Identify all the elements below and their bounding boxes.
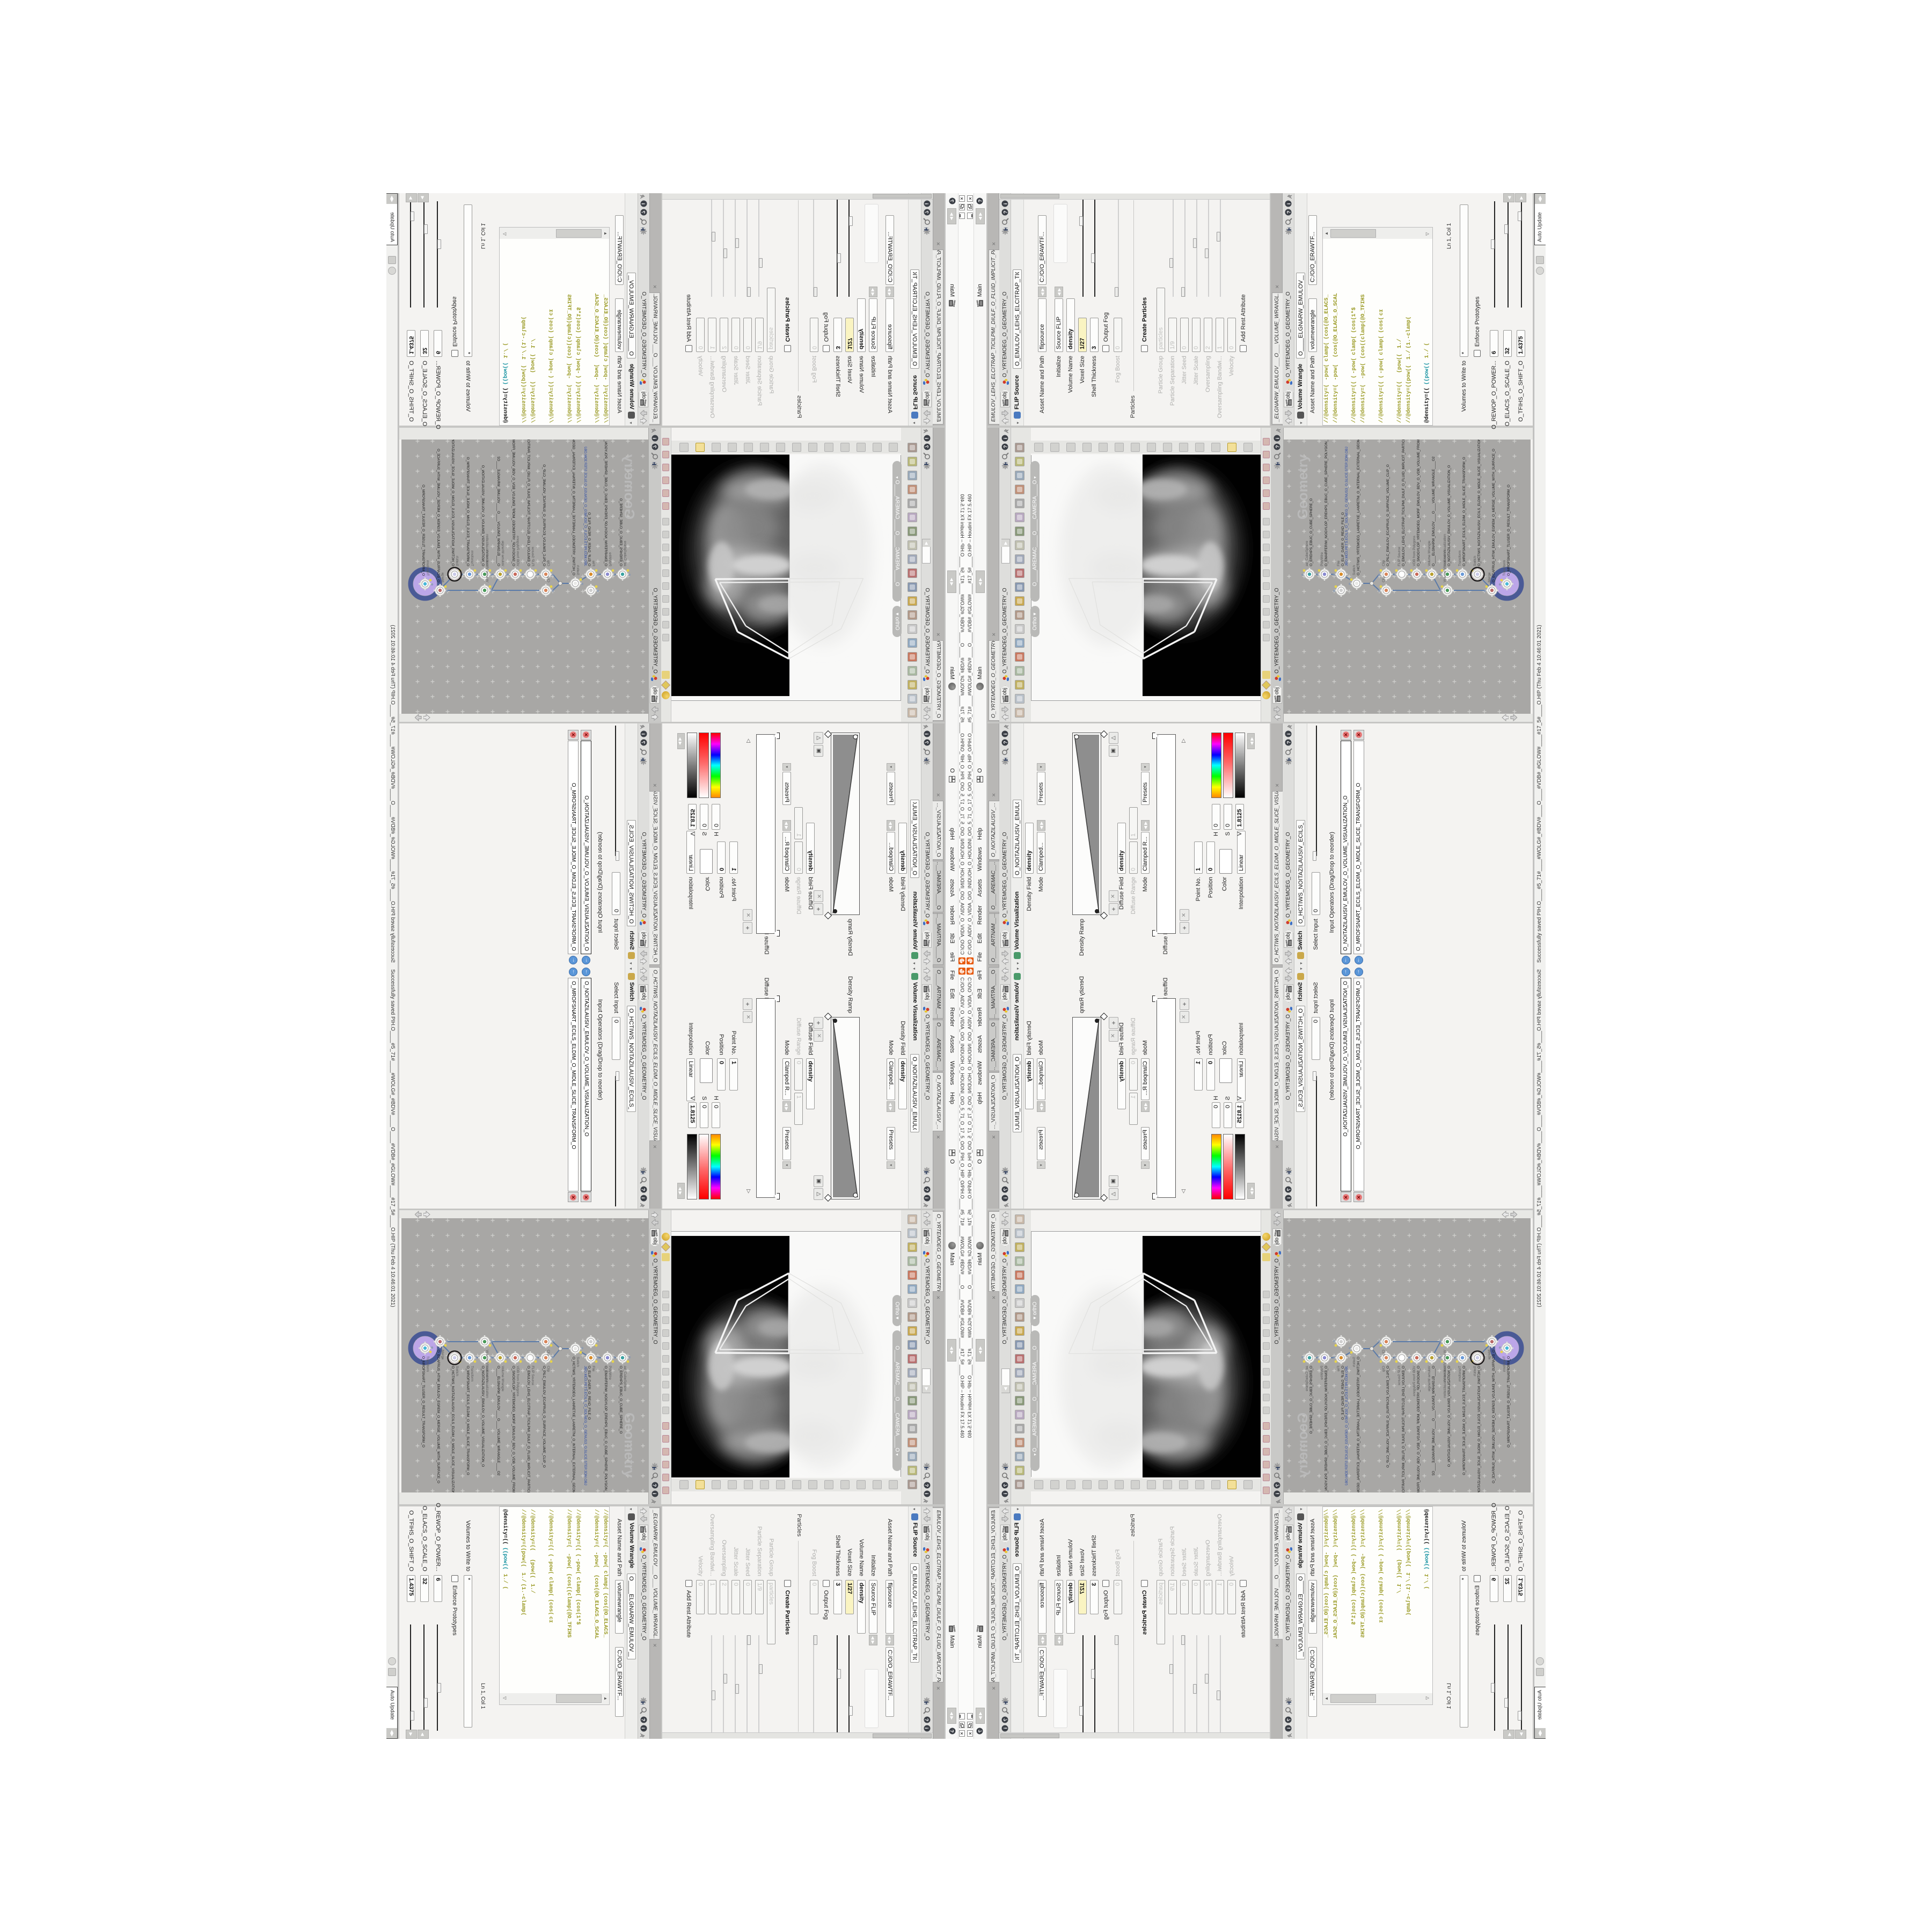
svg-text:ae_CubeSphere: ae_CubeSphere [1305,1366,1309,1392]
svg-text:O_EMULOV_LEHS_ELCITRAP_TICILPM: O_EMULOV_LEHS_ELCITRAP_TICILPMI_DIULF_O_… [1402,440,1406,566]
svg-text:O_SNOGYLOP_YRTEMOEG_MORF_EMULO: O_SNOGYLOP_YRTEMOEG_MORF_EMULOV_BDV_O_VD… [511,440,515,566]
svg-text:Transform: Transform [426,560,429,576]
svg-text:O_HCTIWS_NOITAZILAUSIV_ECILS_E: O_HCTIWS_NOITAZILAUSIV_ECILS_ELDIM_O_MID… [451,440,455,566]
svg-text:O_PILC_EMULOV_ECAFRUS_O_SURFAC: O_PILC_EMULOV_ECAFRUS_O_SURFACE_VOLUME_C… [542,1366,546,1468]
svg-text:File: File [591,560,595,566]
svg-text:H: H [1003,462,1009,465]
svg-text:Merge: Merge [441,1350,444,1360]
svg-text:i: i [652,1493,657,1495]
svg-text:H: H [923,462,929,465]
svg-text:O____ELGNARW_EMULOV____O____VO: O____ELGNARW_EMULOV____O____VOLUME_WRANG… [496,1366,500,1476]
svg-text:i: i [924,437,930,439]
svg-text:H: H [651,1467,657,1470]
svg-text:i: i [1286,1728,1292,1729]
svg-text:?: ? [924,741,930,744]
svg-text:Merge: Merge [1488,1350,1491,1360]
svg-text:Transform: Transform [1458,1366,1462,1381]
svg-text:i: i [640,203,646,204]
svg-text:FLIP Source: FLIP Source [1397,1366,1401,1385]
svg-text:i: i [924,733,930,735]
svg-text:Switch: Switch [576,1357,580,1367]
svg-text:VDB from Polygons: VDB from Polygons [1413,536,1416,566]
svg-text:O_PILC_EMULOV_ECAFRUS_O_SURFAC: O_PILC_EMULOV_ECAFRUS_O_SURFACE_VOLUME_C… [1386,1366,1390,1468]
svg-text:H: H [1286,228,1292,231]
svg-text:?: ? [924,445,930,448]
svg-text:File: File [1337,560,1341,566]
svg-text:?: ? [924,210,930,214]
svg-text:i: i [640,733,646,735]
svg-text:?: ? [1002,1188,1008,1191]
svg-text:i: i [1275,437,1280,439]
svg-text:ae_CubeSphere: ae_CubeSphere [623,1366,627,1392]
svg-text:O_NOITAZILAUSIV_EMULOV_O_VOLUM: O_NOITAZILAUSIV_EMULOV_O_VOLUME_VISUALIZ… [481,1366,485,1467]
svg-text:O_SNOGYLOP_YRTEMOEG_MORF_EMULO: O_SNOGYLOP_YRTEMOEG_MORF_EMULOV_BDV_O_VD… [511,1366,515,1492]
svg-text:i: i [1002,203,1008,204]
svg-text:O____ELGNARW_EMULOV____O____VO: O____ELGNARW_EMULOV____O____VOLUME_WRANG… [1432,1366,1436,1476]
svg-text:O_ELIF_DAER_O_READ_FILE_O: O_ELIF_DAER_O_READ_FILE_O [587,1366,591,1419]
svg-text:H: H [923,228,929,231]
svg-text:i: i [1002,1493,1008,1495]
svg-text:Transform: Transform [1458,551,1462,566]
svg-text:Volume Visualization: Volume Visualization [485,1350,489,1382]
svg-text:Switch: Switch [1473,1366,1477,1377]
svg-text:PolyWire: PolyWire [608,1366,612,1380]
svg-text:?: ? [949,1730,955,1733]
svg-text:i: i [1286,203,1292,204]
svg-text:?: ? [977,199,983,202]
svg-text:H: H [1003,1701,1009,1704]
svg-text:O_EREHPS_EBUC_O_CUBE_SPHERE_O: O_EREHPS_EBUC_O_CUBE_SPHERE_O [1309,1366,1313,1433]
svg-text:O_PILC_EMULOV_ECAFRUS_O_SURFAC: O_PILC_EMULOV_ECAFRUS_O_SURFACE_VOLUME_C… [1386,464,1390,566]
svg-text:?: ? [640,210,646,214]
svg-text:O_EMARFERIW_NOGYLOP_EREHPS_EBU: O_EMARFERIW_NOGYLOP_EREHPS_EBUC_O_CUBE_S… [1324,440,1328,566]
svg-text:JBO.MD3.PETS.ECILS_O_SDLNEG_O_: JBO.MD3.PETS.ECILS_O_SDLNEG_O_GENUS3_O.S… [1345,1366,1349,1485]
svg-text:H: H [923,758,929,761]
svg-text:File: File [1337,1366,1341,1372]
svg-text:Clip: Clip [546,560,550,566]
svg-text:?: ? [977,1730,983,1733]
svg-text:Switch: Switch [576,565,580,575]
svg-text:VDB from Polygons: VDB from Polygons [516,536,519,566]
svg-text:Clip: Clip [546,1366,550,1372]
svg-text:i: i [1275,1493,1280,1495]
svg-text:H: H [1275,462,1281,465]
svg-text:Volume Wrangle: Volume Wrangle [501,1366,504,1392]
svg-text:?: ? [1275,445,1280,448]
svg-text:i: i [924,203,930,204]
svg-text:O_HCTIWS_NOITAZILAUSIV_ECILS_E: O_HCTIWS_NOITAZILAUSIV_ECILS_ELDIM_O_MID… [1477,440,1481,566]
svg-text:VDB from Polygons: VDB from Polygons [516,1366,519,1396]
svg-text:PolyWire: PolyWire [1320,552,1324,566]
svg-text:ae_CubeSphere: ae_CubeSphere [623,540,627,566]
svg-text:?: ? [652,1484,657,1487]
svg-text:H: H [923,1467,929,1470]
svg-text:H: H [1003,228,1009,231]
svg-text:Switch: Switch [455,555,459,566]
svg-text:FLIP Source: FLIP Source [531,1366,535,1385]
svg-text:?: ? [1286,210,1292,214]
svg-text:O_SNOGYLOP_YRTEMOEG_MORF_EMULO: O_SNOGYLOP_YRTEMOEG_MORF_EMULOV_BDV_O_VD… [1417,1366,1421,1492]
svg-text:Switch: Switch [1352,1357,1356,1367]
svg-text:?: ? [949,199,955,202]
svg-text:O_EREHPS_EBUC_O_CUBE_SPHERE_O: O_EREHPS_EBUC_O_CUBE_SPHERE_O [619,1366,623,1433]
svg-text:i: i [1002,1728,1008,1729]
svg-text:i: i [924,1197,930,1199]
svg-text:O_ELIF_DAER_O_READ_FILE_O: O_ELIF_DAER_O_READ_FILE_O [1341,513,1345,566]
svg-text:Switch: Switch [455,1366,459,1377]
svg-text:H: H [640,1171,646,1174]
svg-text:?: ? [640,1718,646,1722]
svg-text:O_ELIF_DAER_O_READ_FILE_O: O_ELIF_DAER_O_READ_FILE_O [587,513,591,566]
svg-text:H: H [923,1171,929,1174]
svg-text:H: H [1286,758,1292,761]
svg-text:O_HCTIWS_NOITAZILAUSIV_ECILS_E: O_HCTIWS_NOITAZILAUSIV_ECILS_ELDIM_O_MID… [1477,1366,1481,1492]
svg-text:i: i [640,1728,646,1729]
svg-text:Clip: Clip [1382,1350,1386,1356]
svg-text:O_HCTIWS_YRTEMOEG_LANRETXE_LAN: O_HCTIWS_YRTEMOEG_LANRETXE_LANRETNI_O_IN… [1357,1357,1360,1492]
svg-text:i: i [924,1493,930,1495]
svg-text:Transform: Transform [1503,560,1506,576]
svg-text:H: H [1003,1467,1009,1470]
svg-text:O_NOITAZILAUSIV_EMULOV_O_VOLUM: O_NOITAZILAUSIV_EMULOV_O_VOLUME_VISUALIZ… [481,465,485,566]
svg-text:Clip: Clip [1382,576,1386,582]
svg-text:O_EREHPS_EBUC_O_CUBE_SPHERE_O: O_EREHPS_EBUC_O_CUBE_SPHERE_O [1309,499,1313,566]
svg-text:Switch: Switch [1352,565,1356,575]
svg-text:JBO.MD3.PETS.ECILS_O_SDLNEG_O_: JBO.MD3.PETS.ECILS_O_SDLNEG_O_GENUS3_O.S… [583,447,587,566]
svg-text:?: ? [924,1484,930,1487]
svg-text:?: ? [1286,1718,1292,1722]
svg-text:O_HCTIWS_YRTEMOEG_LANRETXE_LAN: O_HCTIWS_YRTEMOEG_LANRETXE_LANRETNI_O_IN… [1357,440,1360,575]
svg-text:i: i [1002,733,1008,735]
svg-text:H: H [651,462,657,465]
svg-text:Clip: Clip [546,1350,550,1356]
svg-text:?: ? [1002,445,1008,448]
svg-text:O_HCTIWS_NOITAZILAUSIV_ECILS_E: O_HCTIWS_NOITAZILAUSIV_ECILS_ELDIM_O_MID… [451,1366,455,1492]
svg-text:FLIP Source: FLIP Source [1397,547,1401,566]
svg-text:?: ? [924,1188,930,1191]
svg-text:PolyWire: PolyWire [1320,1366,1324,1380]
svg-text:O_EREHPS_EBUC_O_CUBE_SPHERE_O: O_EREHPS_EBUC_O_CUBE_SPHERE_O [619,499,623,566]
svg-text:Transform: Transform [470,551,474,566]
svg-text:JBO.MD3.PETS.ECILS_O_SDLNEG_O_: JBO.MD3.PETS.ECILS_O_SDLNEG_O_GENUS3_O.S… [583,1366,587,1485]
svg-text:Clip: Clip [1382,560,1386,566]
svg-text:H: H [1003,758,1009,761]
svg-text:?: ? [640,741,646,744]
svg-text:Transform: Transform [470,1366,474,1381]
svg-text:H: H [1286,1171,1292,1174]
svg-text:Volume Visualization: Volume Visualization [1443,550,1447,582]
svg-text:JBO.MD3.PETS.ECILS_O_SDLNEG_O_: JBO.MD3.PETS.ECILS_O_SDLNEG_O_GENUS3_O.S… [1345,447,1349,566]
svg-text:Merge: Merge [441,572,444,582]
svg-text:O_HCTIWS_YRTEMOEG_LANRETXE_LAN: O_HCTIWS_YRTEMOEG_LANRETXE_LANRETNI_O_IN… [572,1357,575,1492]
svg-text:i: i [640,1197,646,1199]
svg-text:Volume Visualization: Volume Visualization [1443,1350,1447,1382]
svg-text:O_EMARFERIW_NOGYLOP_EREHPS_EBU: O_EMARFERIW_NOGYLOP_EREHPS_EBUC_O_CUBE_S… [1324,1366,1328,1492]
svg-text:O_EMULOV_LEHS_ELCITRAP_TICILPM: O_EMULOV_LEHS_ELCITRAP_TICILPMI_DIULF_O_… [526,1366,530,1492]
svg-text:Clip: Clip [1382,1366,1386,1372]
svg-text:Volume Wrangle: Volume Wrangle [1428,540,1431,566]
svg-text:O_EMULOV_LEHS_ELCITRAP_TICILPM: O_EMULOV_LEHS_ELCITRAP_TICILPMI_DIULF_O_… [1402,1366,1406,1492]
svg-text:O_EMARFERIW_NOGYLOP_EREHPS_EBU: O_EMARFERIW_NOGYLOP_EREHPS_EBUC_O_CUBE_S… [604,1366,608,1492]
svg-text:?: ? [1002,1718,1008,1722]
svg-text:i: i [924,1728,930,1729]
svg-text:O_EMULOV_LEHS_ELCITRAP_TICILPM: O_EMULOV_LEHS_ELCITRAP_TICILPMI_DIULF_O_… [526,440,530,566]
svg-text:?: ? [640,1188,646,1191]
svg-text:?: ? [652,445,657,448]
svg-text:Volume Wrangle: Volume Wrangle [1428,1366,1431,1392]
svg-text:?: ? [924,1718,930,1722]
svg-text:Volume Wrangle: Volume Wrangle [501,540,504,566]
svg-text:O_NOITAZILAUSIV_EMULOV_O_VOLUM: O_NOITAZILAUSIV_EMULOV_O_VOLUME_VISUALIZ… [1447,465,1451,566]
svg-text:H: H [640,1701,646,1704]
svg-text:?: ? [1002,210,1008,214]
svg-text:O_HCTIWS_YRTEMOEG_LANRETXE_LAN: O_HCTIWS_YRTEMOEG_LANRETXE_LANRETNI_O_IN… [572,440,575,575]
svg-text:PolyWire: PolyWire [608,552,612,566]
svg-text:O____ELGNARW_EMULOV____O____VO: O____ELGNARW_EMULOV____O____VOLUME_WRANG… [1432,456,1436,566]
svg-text:H: H [640,228,646,231]
svg-text:i: i [1286,733,1292,735]
svg-text:H: H [923,1701,929,1704]
svg-text:H: H [640,758,646,761]
svg-text:i: i [1002,1197,1008,1199]
svg-text:ae_CubeSphere: ae_CubeSphere [1305,540,1309,566]
svg-text:i: i [1002,437,1008,439]
svg-text:?: ? [1275,1484,1280,1487]
svg-text:O_NOITAZILAUSIV_EMULOV_O_VOLUM: O_NOITAZILAUSIV_EMULOV_O_VOLUME_VISUALIZ… [1447,1366,1451,1467]
svg-text:O_SNOGYLOP_YRTEMOEG_MORF_EMULO: O_SNOGYLOP_YRTEMOEG_MORF_EMULOV_BDV_O_VD… [1417,440,1421,566]
svg-text:?: ? [1002,741,1008,744]
svg-text:?: ? [1286,1188,1292,1191]
svg-text:File: File [591,1366,595,1372]
svg-text:H: H [1286,1701,1292,1704]
svg-text:i: i [652,437,657,439]
svg-text:?: ? [1002,1484,1008,1487]
svg-text:O_PILC_EMULOV_ECAFRUS_O_SURFAC: O_PILC_EMULOV_ECAFRUS_O_SURFACE_VOLUME_C… [542,464,546,566]
svg-text:FLIP Source: FLIP Source [531,547,535,566]
svg-text:H: H [1275,1467,1281,1470]
svg-text:VDB from Polygons: VDB from Polygons [1413,1366,1416,1396]
svg-text:?: ? [1286,741,1292,744]
svg-text:H: H [1003,1171,1009,1174]
svg-text:O_EMARFERIW_NOGYLOP_EREHPS_EBU: O_EMARFERIW_NOGYLOP_EREHPS_EBUC_O_CUBE_S… [604,440,608,566]
svg-text:Volume Visualization: Volume Visualization [485,550,489,582]
svg-text:O____ELGNARW_EMULOV____O____VO: O____ELGNARW_EMULOV____O____VOLUME_WRANG… [496,456,500,566]
svg-text:i: i [1286,1197,1292,1199]
svg-text:O_ELIF_DAER_O_READ_FILE_O: O_ELIF_DAER_O_READ_FILE_O [1341,1366,1345,1419]
svg-text:Merge: Merge [1488,572,1491,582]
svg-text:Transform: Transform [426,1356,429,1372]
svg-text:Switch: Switch [1473,555,1477,566]
svg-text:Clip: Clip [546,576,550,582]
svg-text:Transform: Transform [1503,1356,1506,1372]
